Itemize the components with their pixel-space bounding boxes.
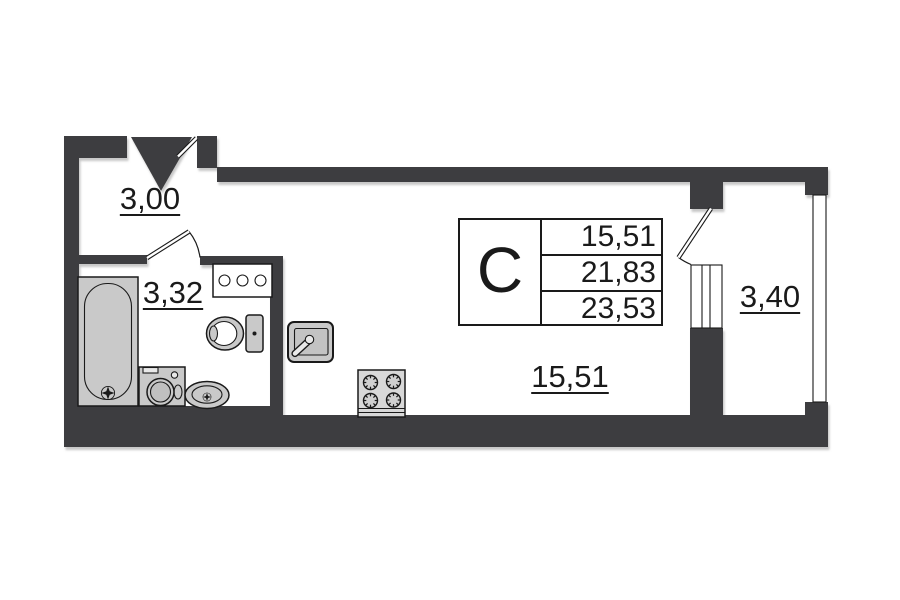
stove-burner-icon bbox=[386, 393, 401, 408]
balcony-dimension-label: 3,40 bbox=[733, 281, 807, 312]
stove bbox=[358, 370, 405, 417]
wall-top-left-corner bbox=[64, 136, 127, 158]
bathtub-drain-icon bbox=[101, 386, 114, 399]
wall-top bbox=[217, 167, 828, 182]
wall-balcony-pier-bottom bbox=[690, 328, 723, 416]
wall-entrance-block bbox=[197, 136, 217, 168]
wall-bathroom-floor-strip bbox=[64, 406, 283, 418]
pedestal-sink bbox=[185, 382, 229, 409]
wall-balcony-pier-top bbox=[690, 167, 723, 209]
wall-top-right-corner bbox=[805, 167, 828, 195]
bathroom-shelf bbox=[213, 264, 272, 297]
floor-plan-canvas: 3,00 3,32 15,51 3,40 С 15,51 21,83 23,53 bbox=[0, 0, 900, 600]
bathroom-door bbox=[147, 232, 200, 259]
area-table: С 15,51 21,83 23,53 bbox=[458, 218, 663, 326]
stove-burner-icon bbox=[363, 393, 378, 408]
hallway-dimension-label: 3,00 bbox=[108, 183, 192, 214]
balcony-window bbox=[691, 265, 722, 328]
area-value-row: 21,83 bbox=[542, 256, 661, 292]
balcony-door bbox=[679, 209, 712, 265]
stove-burner-icon bbox=[386, 374, 401, 389]
wall-left bbox=[64, 136, 79, 447]
stove-burner-icon bbox=[363, 375, 378, 390]
unit-type-label: С bbox=[460, 220, 542, 324]
area-value-row: 23,53 bbox=[542, 292, 661, 326]
area-table-values: 15,51 21,83 23,53 bbox=[542, 220, 661, 324]
kitchen-sink bbox=[288, 322, 333, 362]
bathroom-dimension-label: 3,32 bbox=[136, 277, 210, 308]
outer-window bbox=[813, 195, 826, 402]
wall-bottom bbox=[64, 415, 828, 447]
wall-bathroom-top-left bbox=[78, 255, 147, 264]
sink-drain-icon bbox=[203, 393, 211, 401]
toilet bbox=[207, 315, 264, 352]
washing-machine bbox=[139, 367, 185, 406]
area-value-row: 15,51 bbox=[542, 220, 661, 256]
living-room-area-label: 15,51 bbox=[520, 361, 620, 392]
bathtub bbox=[78, 277, 138, 406]
